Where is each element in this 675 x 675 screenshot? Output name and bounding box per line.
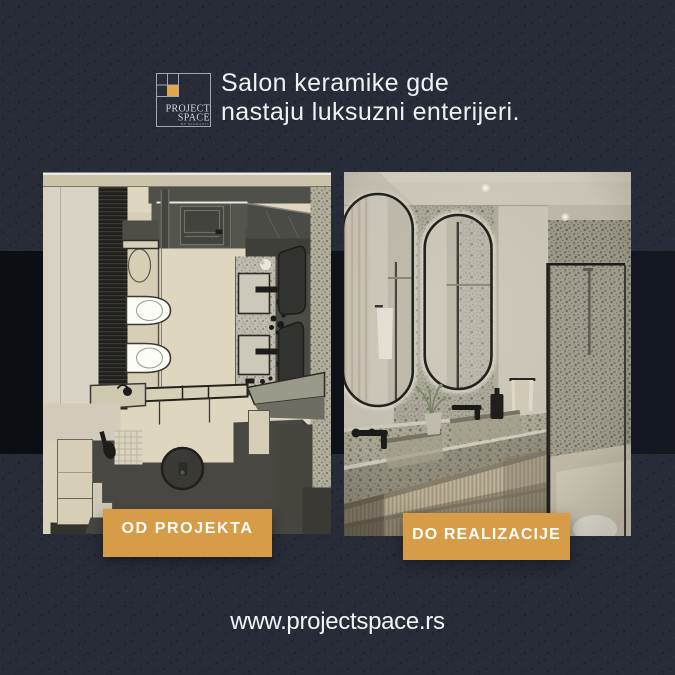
svg-text:BY DIAMANTI: BY DIAMANTI (181, 122, 209, 126)
